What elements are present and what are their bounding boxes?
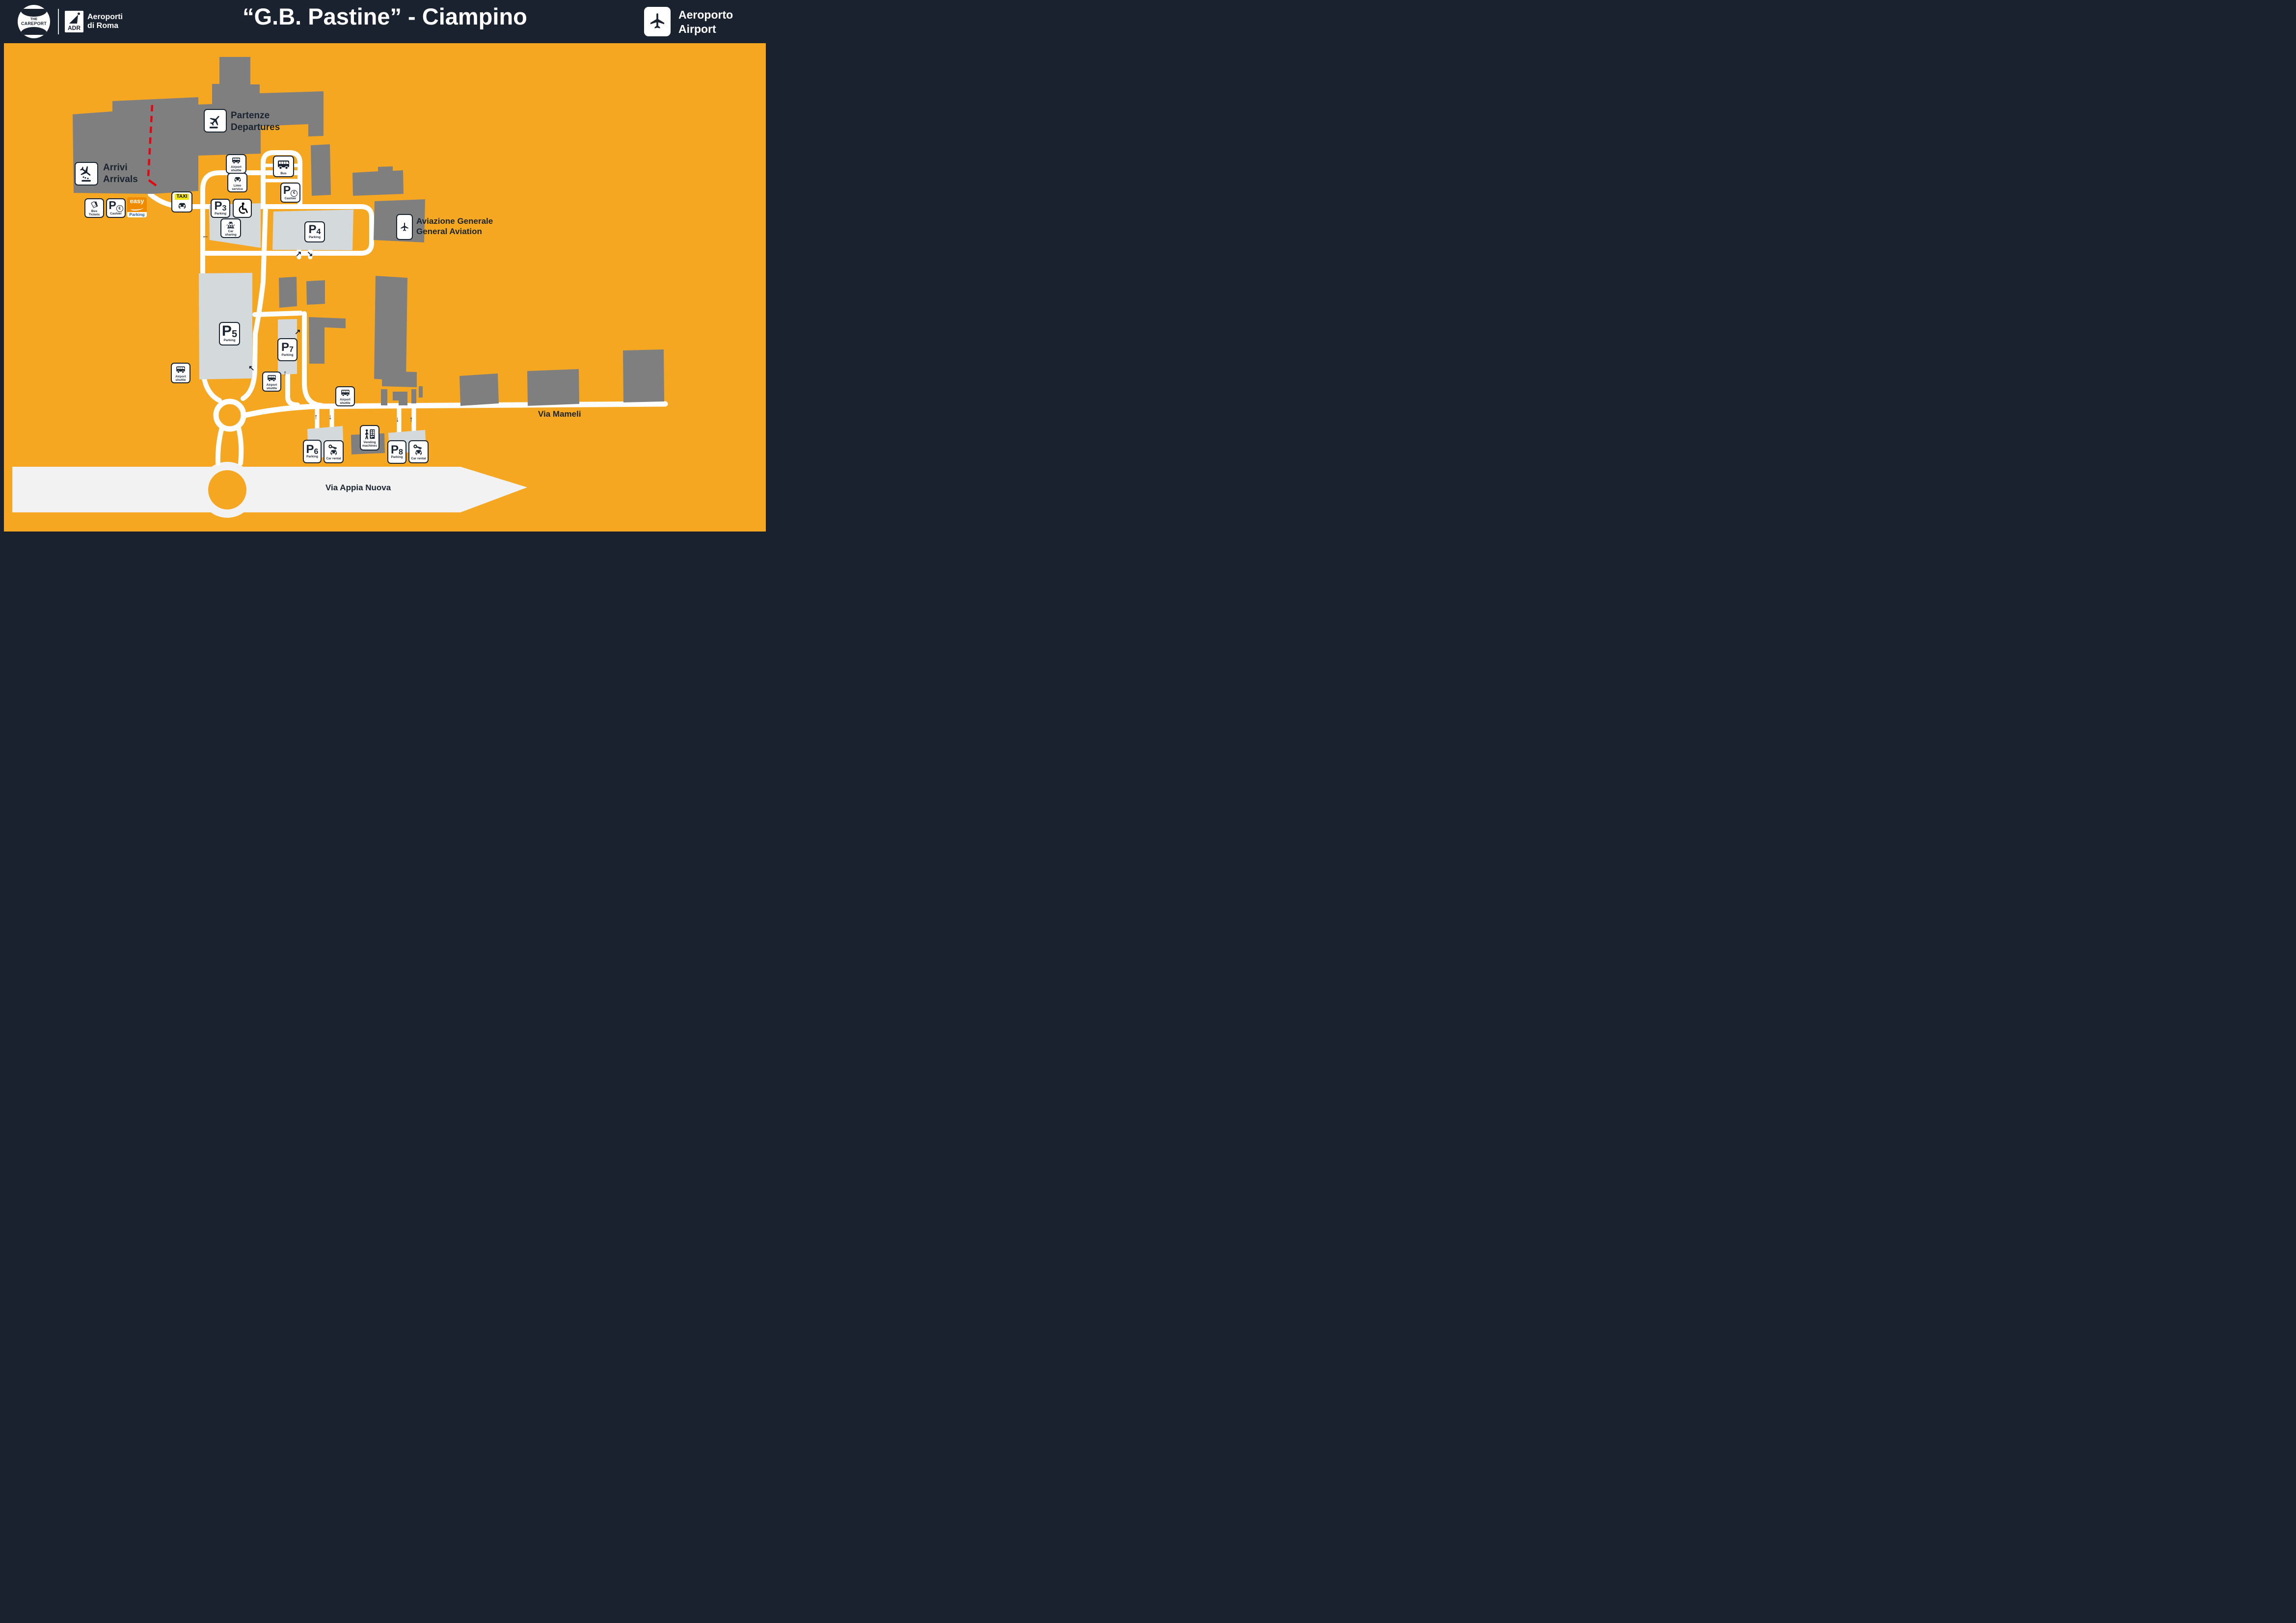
easy-parking-word2: Parking — [127, 212, 147, 217]
cashier-sign-2: P € Cashier — [280, 183, 300, 203]
sign-label: Bus Tickets — [86, 210, 103, 216]
airport-shuttle-sign-2: Airport shuttle — [171, 363, 190, 383]
sign-label: Airport shuttle — [231, 165, 242, 172]
direction-arrow: ↘ — [307, 250, 313, 258]
direction-arrow: ↑ — [409, 416, 413, 423]
p-letter: P — [283, 186, 291, 195]
airport-plane-badge — [644, 7, 671, 36]
p6-sign: P 6 Parking — [303, 440, 322, 463]
p-number: 5 — [232, 330, 237, 338]
careport-logo-the: THE — [30, 18, 37, 21]
sign-label: Car rental — [326, 457, 341, 460]
general-aviation-sign — [396, 214, 413, 240]
general-aviation-label: Aviazione GeneraleGeneral Aviation — [416, 216, 493, 237]
taxi-roof-sign: TAXI — [175, 194, 189, 200]
adr-line1: Aeroporti — [87, 13, 123, 22]
bus-icon — [231, 156, 242, 165]
direction-arrow: ↓ — [396, 416, 400, 423]
car-sharing-sign: Car sharing — [220, 218, 241, 238]
bus-icon — [266, 373, 277, 383]
adr-sail-icon — [66, 12, 82, 25]
building — [411, 389, 416, 403]
vending-machines-sign: Vending machines — [360, 425, 379, 451]
arrivals-label-line: Arrivi — [103, 162, 138, 174]
sign-label: Airport shuttle — [340, 398, 351, 405]
airport-map-page: THE CAREPORT ADR Aeroporti di Roma “G.B.… — [0, 0, 770, 544]
sign-label: Parking — [224, 339, 236, 342]
arrivals-label-line: Arrivals — [103, 174, 138, 186]
direction-arrow: ↗ — [296, 250, 302, 258]
sign-label: Parking — [391, 455, 403, 459]
p-number: 6 — [314, 449, 319, 455]
car-rental-sign-1: Car rental — [324, 440, 344, 463]
departures-sign — [204, 109, 227, 133]
car-icon — [232, 174, 243, 184]
adr-line2: di Roma — [87, 22, 123, 30]
building — [419, 386, 423, 398]
arrivals-label: ArriviArrivals — [103, 162, 138, 186]
header-bar: THE CAREPORT ADR Aeroporti di Roma “G.B.… — [0, 0, 770, 43]
sign-label: Cashier — [285, 197, 297, 200]
map-canvas — [0, 0, 770, 544]
car-rental-icon — [327, 444, 340, 457]
direction-arrow: ↖ — [248, 365, 255, 372]
sign-label: Limo service — [232, 184, 243, 191]
sign-label: Airport shuttle — [175, 375, 186, 382]
easy-parking-sign: easy Parking — [127, 197, 147, 217]
p-letter: P — [108, 201, 116, 210]
sign-label: Car rental — [411, 457, 426, 460]
sign-label: Bus — [280, 172, 286, 175]
via-appia-nuova-road — [12, 462, 527, 518]
building — [382, 371, 417, 387]
adr-logo-mark: ADR — [65, 11, 83, 32]
building — [527, 369, 579, 406]
sign-label: Parking — [309, 236, 321, 239]
taxi-sign: TAXI — [171, 191, 192, 213]
sign-label: Parking — [306, 455, 318, 458]
building — [459, 373, 499, 406]
disabled-parking-sign — [233, 199, 252, 218]
p-letter: P — [306, 445, 314, 454]
via-appia-nuova-label: Via Appia Nuova — [325, 482, 391, 493]
p7-sign: P 7 Parking — [277, 338, 297, 361]
sign-label: Airport shuttle — [267, 383, 277, 390]
bus-icon — [276, 158, 291, 172]
sign-label: Parking — [282, 353, 294, 357]
building — [623, 349, 664, 402]
bus-icon — [340, 388, 351, 398]
airport-shuttle-sign-4: Airport shuttle — [335, 386, 355, 406]
airport-line1: Aeroporto — [678, 8, 733, 22]
car-rental-icon — [412, 444, 425, 457]
euro-icon: € — [116, 205, 123, 212]
p-letter: P — [391, 445, 399, 455]
careport-logo: THE CAREPORT — [18, 5, 50, 38]
airport-shuttle-sign-1: Airport shuttle — [226, 154, 246, 174]
easy-parking-word1: easy — [130, 198, 144, 204]
p-number: 8 — [399, 449, 403, 455]
vending-icon — [363, 428, 376, 441]
sign-label: Car sharing — [222, 230, 240, 237]
building — [311, 144, 331, 196]
euro-icon: € — [291, 190, 297, 197]
building — [374, 276, 407, 381]
airport-shuttle-sign-3: Airport shuttle — [262, 372, 281, 392]
p-letter: P — [215, 201, 222, 211]
p-number: 7 — [289, 346, 294, 353]
bus-icon — [175, 364, 187, 375]
building — [381, 389, 387, 405]
adr-abbr: ADR — [65, 25, 83, 31]
direction-arrow: ← — [202, 232, 209, 239]
p-number: 3 — [222, 205, 227, 212]
p4-sign: P 4 Parking — [304, 221, 325, 242]
via-appia-nuova-label-line: Via Appia Nuova — [325, 482, 391, 493]
header-divider — [58, 9, 59, 34]
plane-arrive-icon — [78, 165, 95, 183]
roundabout-connector — [239, 428, 241, 463]
building — [306, 280, 325, 305]
p5-sign: P 5 Parking — [219, 322, 240, 346]
careport-logo-leaf — [21, 27, 47, 35]
careport-logo-name: CAREPORT — [21, 21, 47, 26]
adr-wordmark: Aeroporti di Roma — [87, 13, 123, 30]
car-sharing-icon — [224, 220, 238, 230]
sign-label: Parking — [215, 212, 226, 215]
p-letter: P — [222, 325, 232, 338]
cashier-sign-1: P € Cashier — [106, 198, 126, 218]
building — [279, 277, 297, 308]
via-mameli-label-line: Via Mameli — [538, 409, 581, 419]
limo-service-sign: Limo service — [227, 173, 247, 192]
general-aviation-label-line: Aviazione Generale — [416, 216, 493, 226]
departures-label-line: Partenze — [231, 110, 280, 122]
sign-label: Vending machines — [361, 441, 378, 448]
sign-label: Cashier — [110, 212, 122, 215]
adr-logo: ADR Aeroporti di Roma — [65, 11, 123, 32]
arrivals-sign — [75, 162, 98, 186]
page-title: “G.B. Pastine” - Ciampino — [243, 3, 527, 30]
bus-stop-sign: Bus — [273, 156, 294, 177]
plane-depart-icon — [207, 112, 224, 130]
car-rental-sign-2: Car rental — [408, 440, 429, 463]
departures-label: PartenzeDepartures — [231, 110, 280, 133]
big-roundabout-island — [208, 470, 246, 509]
airport-wordmark: Aeroporto Airport — [678, 8, 733, 36]
airport-line2: Airport — [678, 22, 733, 36]
plane-icon — [648, 11, 667, 32]
general-aviation-label-line: General Aviation — [416, 226, 493, 237]
car-icon — [176, 200, 188, 211]
p7-north-road — [255, 313, 300, 315]
plane-up-icon — [399, 222, 410, 233]
easy-parking-swoosh-icon — [131, 206, 143, 211]
departures-label-line: Departures — [231, 122, 280, 133]
p3-sign: P 3 Parking — [211, 199, 230, 218]
via-mameli-label: Via Mameli — [538, 409, 581, 419]
p-letter: P — [309, 225, 317, 235]
p8-sign: P 8 Parking — [387, 440, 406, 464]
direction-arrow: ↓ — [328, 413, 332, 421]
careport-logo-wing — [21, 9, 47, 17]
p-letter: P — [281, 343, 289, 352]
p-number: 4 — [317, 229, 321, 235]
direction-arrow: ↗ — [295, 328, 301, 336]
wheelchair-icon — [235, 201, 249, 215]
tickets-icon — [88, 200, 101, 210]
direction-arrow: ↑ — [283, 370, 287, 377]
bus-tickets-sign: Bus Tickets — [84, 198, 104, 218]
direction-arrow: ↑ — [314, 413, 318, 421]
